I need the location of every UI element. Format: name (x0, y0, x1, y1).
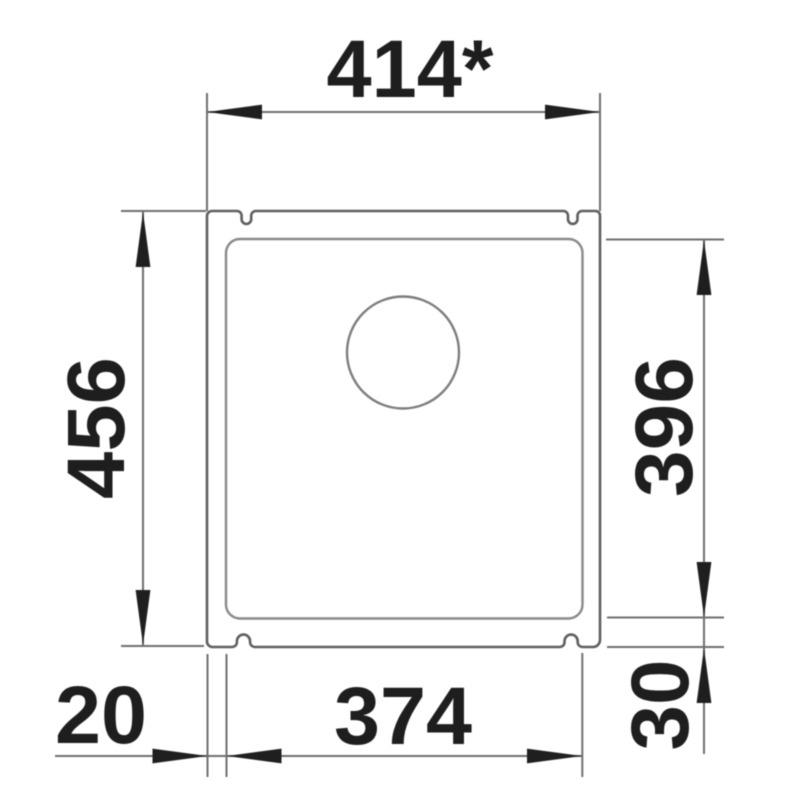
svg-text:30: 30 (615, 660, 706, 751)
svg-text:414*: 414* (327, 24, 494, 115)
svg-text:456: 456 (51, 357, 142, 499)
svg-text:20: 20 (55, 670, 147, 761)
svg-text:396: 396 (619, 357, 710, 497)
svg-text:374: 374 (334, 671, 472, 762)
